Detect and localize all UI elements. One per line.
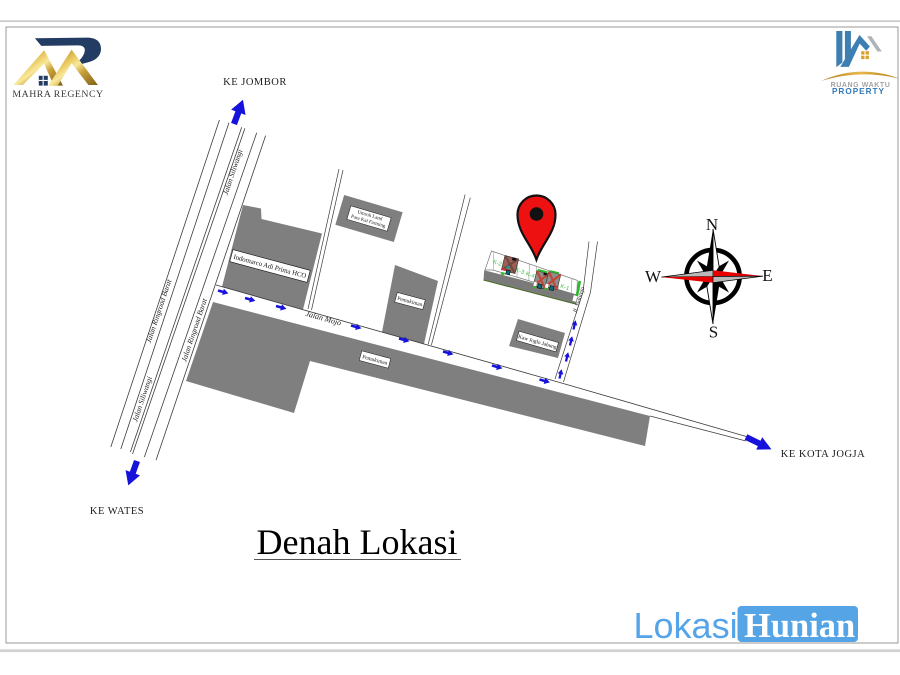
svg-text:MAHRA REGENCY: MAHRA REGENCY xyxy=(12,89,103,100)
svg-text:S: S xyxy=(709,323,718,342)
svg-text:PROPERTY: PROPERTY xyxy=(832,87,885,96)
svg-text:Lokasi: Lokasi xyxy=(634,605,738,646)
svg-text:Jalan Siliwangi: Jalan Siliwangi xyxy=(130,375,154,423)
svg-text:W: W xyxy=(645,267,662,286)
svg-text:Denah Lokasi: Denah Lokasi xyxy=(257,522,458,562)
svg-text:E: E xyxy=(762,266,772,285)
svg-text:Hunian: Hunian xyxy=(744,607,855,645)
svg-text:Jalan Mojo: Jalan Mojo xyxy=(305,309,343,327)
svg-text:N: N xyxy=(706,215,718,234)
svg-text:Jalan Siliwangi: Jalan Siliwangi xyxy=(221,148,245,196)
svg-text:KE JOMBOR: KE JOMBOR xyxy=(223,77,287,88)
svg-text:KE KOTA JOGJA: KE KOTA JOGJA xyxy=(781,449,865,460)
svg-text:KE WATES: KE WATES xyxy=(90,506,144,517)
